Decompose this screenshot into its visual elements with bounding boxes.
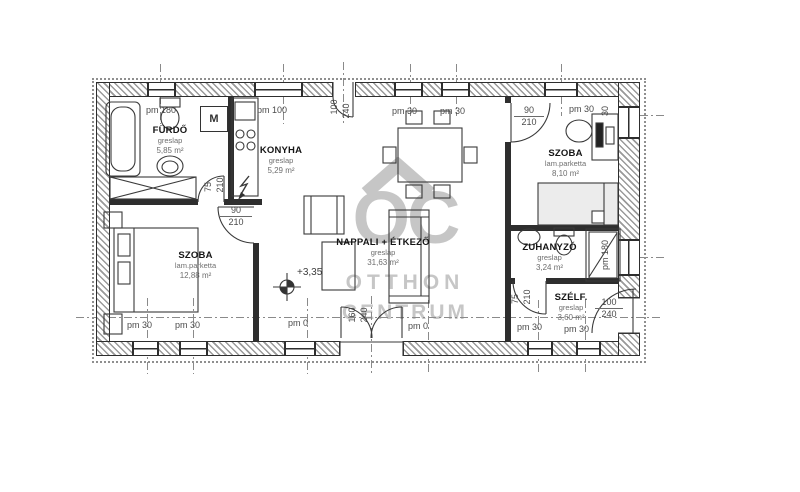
dimension-label: pm 0 [288, 318, 308, 328]
room-label-konyha: KONYHA greslap 5,29 m² [248, 146, 314, 175]
room-label-szoba1: SZOBA lam.parketta 12,88 m² [153, 251, 238, 280]
door-size: 100 [329, 95, 339, 119]
dimension-label: pm 0 [408, 321, 428, 331]
floor-plan: OC OTTHON CENTRUM [0, 0, 800, 492]
dimension-label: pm 30 [175, 320, 200, 330]
dimension-label: pm 30 [440, 106, 465, 116]
desk-chair [566, 120, 592, 142]
dimension-label: pm 180 [600, 233, 610, 277]
dimension-label: pm 30 [517, 322, 542, 332]
bed [538, 183, 618, 225]
dimension-label: 30 [600, 106, 610, 116]
door-size: 75 [203, 177, 213, 197]
door-size: 210 [215, 173, 225, 197]
wardrobe [110, 177, 196, 199]
level-marker-value: +3,35 [297, 267, 322, 278]
door-size: 90 210 [220, 205, 252, 229]
door-size: 75 [510, 289, 520, 309]
dimension-label: pm 30 [392, 106, 417, 116]
door-size: 100 240 [595, 297, 623, 321]
room-label-szoba2: SZOBA lam.parketta 8,10 m² [523, 149, 608, 178]
door-size: 90 210 [514, 105, 544, 129]
dimension-label: pm 30 [127, 320, 152, 330]
door-size: 210 [522, 285, 532, 309]
dimension-label: pm 180 [146, 105, 176, 115]
dimension-label: pm 100 [257, 105, 287, 115]
dining-table [383, 111, 477, 198]
door-size: 240 [359, 303, 369, 327]
room-label-nappali: NAPPALI + ÉTKEZŐ greslap 31,63 m² [328, 238, 438, 267]
door-size: 160 [347, 303, 357, 327]
door-size: 240 [341, 99, 351, 123]
dimension-label: pm 30 [564, 324, 589, 334]
washbasin [157, 156, 183, 176]
room-label-furdo: FÜRDŐ greslap 5,85 m² [133, 126, 207, 155]
washing-machine-label: M [209, 113, 218, 125]
dimension-label: pm 30 [569, 104, 594, 114]
room-label-zuhanyzo: ZUHANYZÓ greslap 3,24 m² [507, 243, 592, 272]
